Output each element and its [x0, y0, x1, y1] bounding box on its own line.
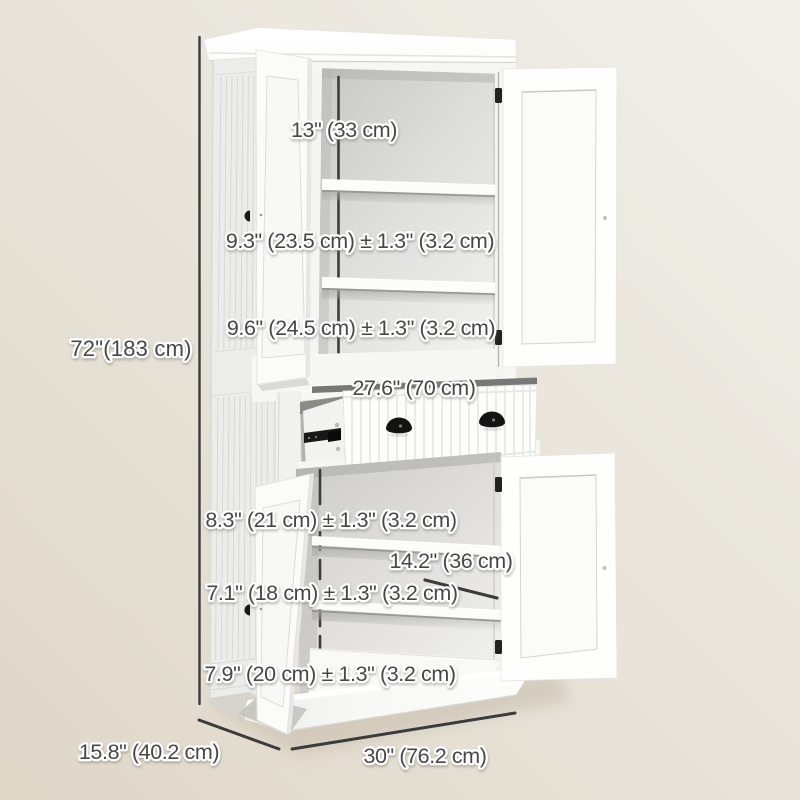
- svg-text:72"(183 cm): 72"(183 cm): [70, 336, 191, 361]
- svg-text:9.6" (24.5 cm) ± 1.3" (3.2 cm): 9.6" (24.5 cm) ± 1.3" (3.2 cm): [227, 316, 495, 340]
- svg-text:13" (33 cm): 13" (33 cm): [291, 118, 397, 142]
- svg-text:14.2" (36 cm): 14.2" (36 cm): [389, 549, 512, 573]
- svg-text:7.9" (20 cm) ± 1.3" (3.2 cm): 7.9" (20 cm) ± 1.3" (3.2 cm): [204, 662, 455, 686]
- svg-text:9.3" (23.5 cm) ± 1.3" (3.2 cm): 9.3" (23.5 cm) ± 1.3" (3.2 cm): [226, 229, 494, 253]
- svg-text:30" (76.2 cm): 30" (76.2 cm): [363, 744, 486, 768]
- svg-text:7.1" (18 cm) ± 1.3" (3.2 cm): 7.1" (18 cm) ± 1.3" (3.2 cm): [206, 581, 457, 605]
- svg-text:8.3" (21 cm) ± 1.3" (3.2 cm): 8.3" (21 cm) ± 1.3" (3.2 cm): [205, 508, 456, 532]
- svg-text:15.8" (40.2 cm): 15.8" (40.2 cm): [79, 740, 219, 764]
- svg-text:27.6" (70 cm): 27.6" (70 cm): [352, 376, 475, 400]
